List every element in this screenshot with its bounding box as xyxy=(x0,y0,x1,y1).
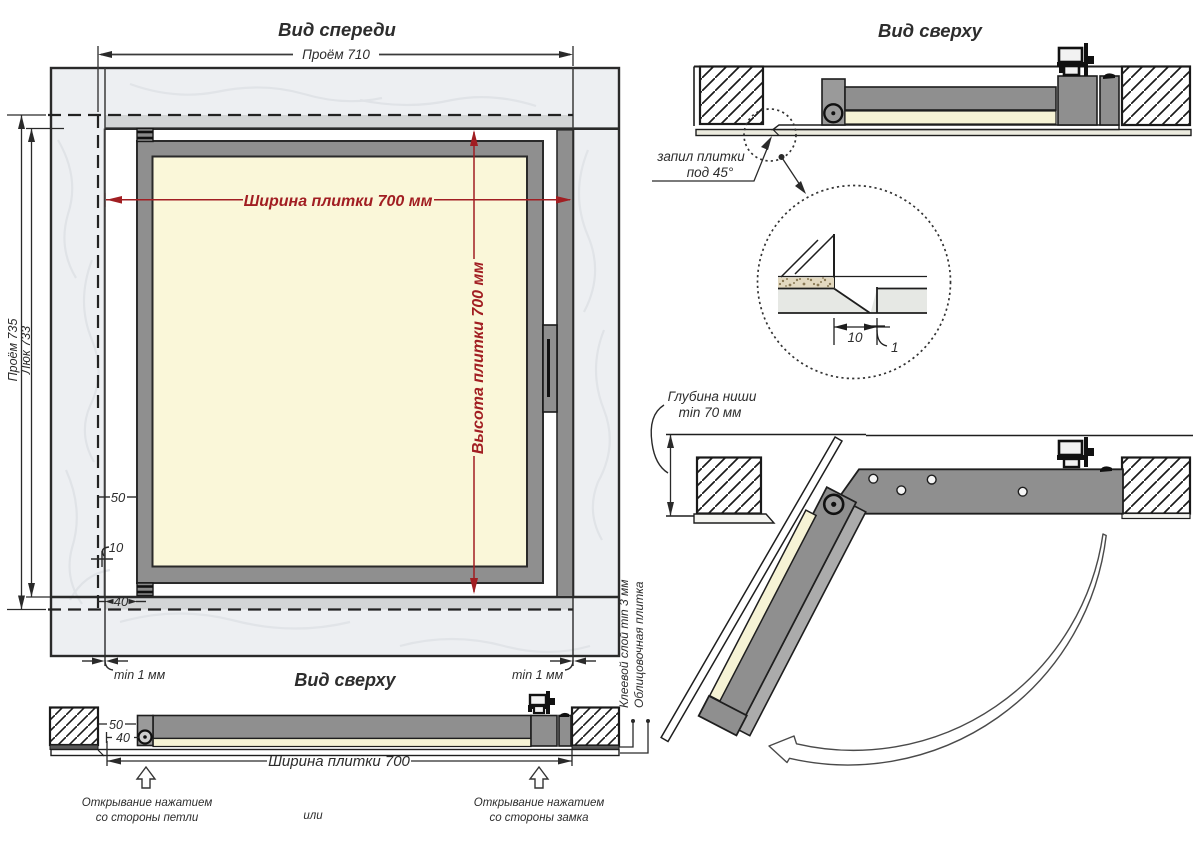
svg-text:10: 10 xyxy=(847,330,863,345)
svg-text:50: 50 xyxy=(111,490,126,505)
svg-text:min 1 мм: min 1 мм xyxy=(114,668,166,682)
svg-text:Люк 733: Люк 733 xyxy=(19,326,33,375)
svg-text:Глубина ниши: Глубина ниши xyxy=(668,389,757,404)
svg-text:со стороны петли: со стороны петли xyxy=(96,812,199,824)
svg-text:Вид сверху: Вид сверху xyxy=(294,670,396,690)
svg-text:40: 40 xyxy=(114,594,129,609)
svg-text:Вид сверху: Вид сверху xyxy=(878,20,984,41)
svg-text:Открывание нажатием: Открывание нажатием xyxy=(474,797,605,809)
svg-text:или: или xyxy=(303,810,323,822)
svg-text:Облицовочная плитка: Облицовочная плитка xyxy=(632,581,646,708)
svg-text:запил плитки: запил плитки xyxy=(656,149,745,164)
svg-text:Ширина плитки 700 мм: Ширина плитки 700 мм xyxy=(244,193,433,210)
svg-text:Клеевой слой min 3 мм: Клеевой слой min 3 мм xyxy=(617,580,631,708)
svg-text:Ширина плитки 700: Ширина плитки 700 xyxy=(268,753,410,770)
svg-text:1: 1 xyxy=(891,340,899,355)
svg-text:со стороны замка: со стороны замка xyxy=(489,812,588,824)
svg-text:под 45°: под 45° xyxy=(687,165,734,180)
svg-text:10: 10 xyxy=(109,540,124,555)
svg-text:min 70 мм: min 70 мм xyxy=(679,405,742,420)
svg-text:Открывание нажатием: Открывание нажатием xyxy=(82,797,213,809)
svg-text:Проём 710: Проём 710 xyxy=(302,47,370,62)
svg-text:Вид спереди: Вид спереди xyxy=(278,19,396,40)
svg-text:40: 40 xyxy=(116,731,130,745)
svg-text:50: 50 xyxy=(109,718,123,732)
svg-text:Высота плитки 700 мм: Высота плитки 700 мм xyxy=(470,262,487,454)
svg-text:min 1 мм: min 1 мм xyxy=(512,668,564,682)
svg-text:Проём 735: Проём 735 xyxy=(6,319,20,382)
